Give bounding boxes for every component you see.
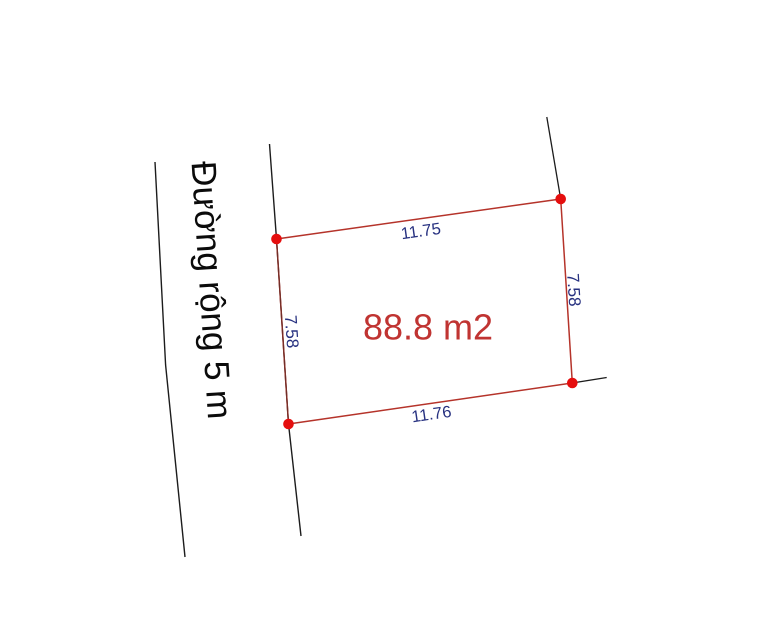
svg-text:7.58: 7.58 bbox=[281, 315, 302, 349]
svg-text:7.58: 7.58 bbox=[563, 273, 584, 307]
svg-text:88.8 m2: 88.8 m2 bbox=[363, 307, 493, 348]
